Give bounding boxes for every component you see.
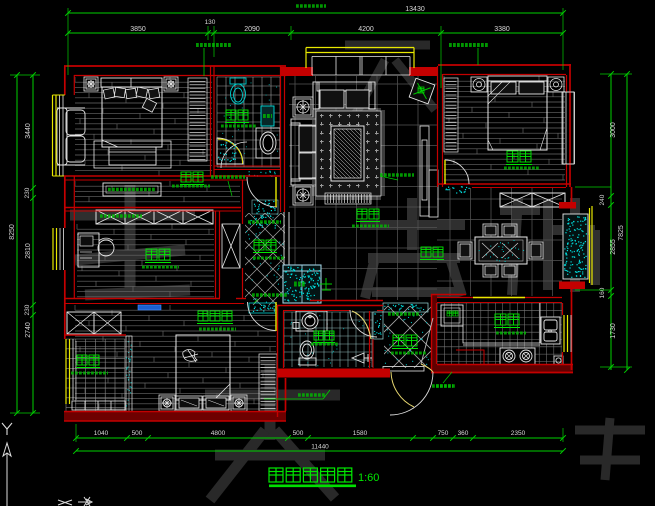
- svg-text:1:60: 1:60: [358, 472, 379, 484]
- svg-text:2740: 2740: [25, 322, 32, 338]
- svg-text:130: 130: [205, 19, 216, 26]
- svg-text:4200: 4200: [358, 26, 374, 33]
- svg-text:3850: 3850: [130, 26, 146, 33]
- svg-text:8250: 8250: [9, 224, 16, 240]
- svg-text:360: 360: [458, 430, 469, 437]
- svg-text:230: 230: [24, 187, 31, 198]
- svg-text:230: 230: [24, 304, 31, 315]
- svg-text:2810: 2810: [25, 243, 32, 259]
- svg-text:13430: 13430: [405, 6, 425, 13]
- svg-text:160: 160: [599, 287, 606, 298]
- svg-text:1580: 1580: [353, 430, 368, 437]
- svg-text:2855: 2855: [610, 239, 617, 255]
- svg-text:7825: 7825: [618, 225, 625, 241]
- svg-text:2350: 2350: [511, 430, 526, 437]
- svg-text:500: 500: [293, 430, 304, 437]
- svg-text:3440: 3440: [25, 123, 32, 139]
- svg-text:11440: 11440: [311, 444, 329, 451]
- svg-text:3380: 3380: [494, 26, 510, 33]
- svg-text:3000: 3000: [610, 122, 617, 138]
- svg-text:240: 240: [599, 194, 606, 205]
- svg-text:750: 750: [438, 430, 449, 437]
- svg-text:1040: 1040: [94, 430, 109, 437]
- svg-text:500: 500: [132, 430, 143, 437]
- svg-text:2090: 2090: [244, 26, 260, 33]
- svg-text:4800: 4800: [211, 430, 226, 437]
- svg-text:1730: 1730: [610, 323, 617, 339]
